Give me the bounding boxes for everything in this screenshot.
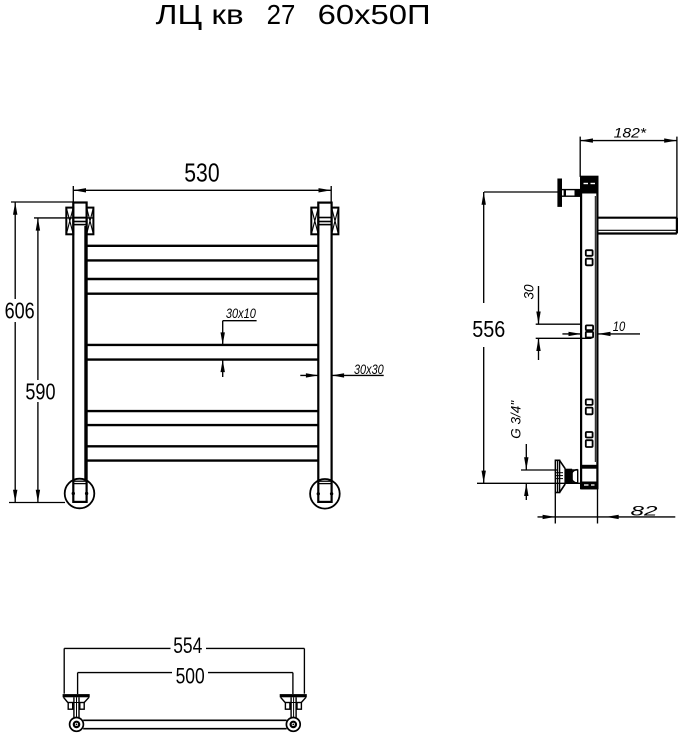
svg-text:82: 82	[631, 503, 659, 518]
svg-text:500: 500	[176, 663, 205, 688]
svg-text:554: 554	[173, 633, 202, 658]
svg-text:556: 556	[472, 316, 505, 342]
svg-text:530: 530	[184, 157, 219, 187]
svg-text:30: 30	[522, 284, 537, 300]
svg-text:590: 590	[25, 378, 55, 404]
svg-text:ЛЦ кв: ЛЦ кв	[156, 0, 244, 30]
svg-text:G 3/4": G 3/4"	[509, 400, 524, 439]
svg-text:182*: 182*	[614, 125, 647, 140]
svg-text:27: 27	[267, 0, 296, 30]
svg-text:10: 10	[613, 319, 626, 334]
svg-text:30х10: 30х10	[226, 306, 256, 321]
svg-text:606: 606	[5, 298, 35, 324]
svg-text:60х50П: 60х50П	[318, 0, 431, 30]
